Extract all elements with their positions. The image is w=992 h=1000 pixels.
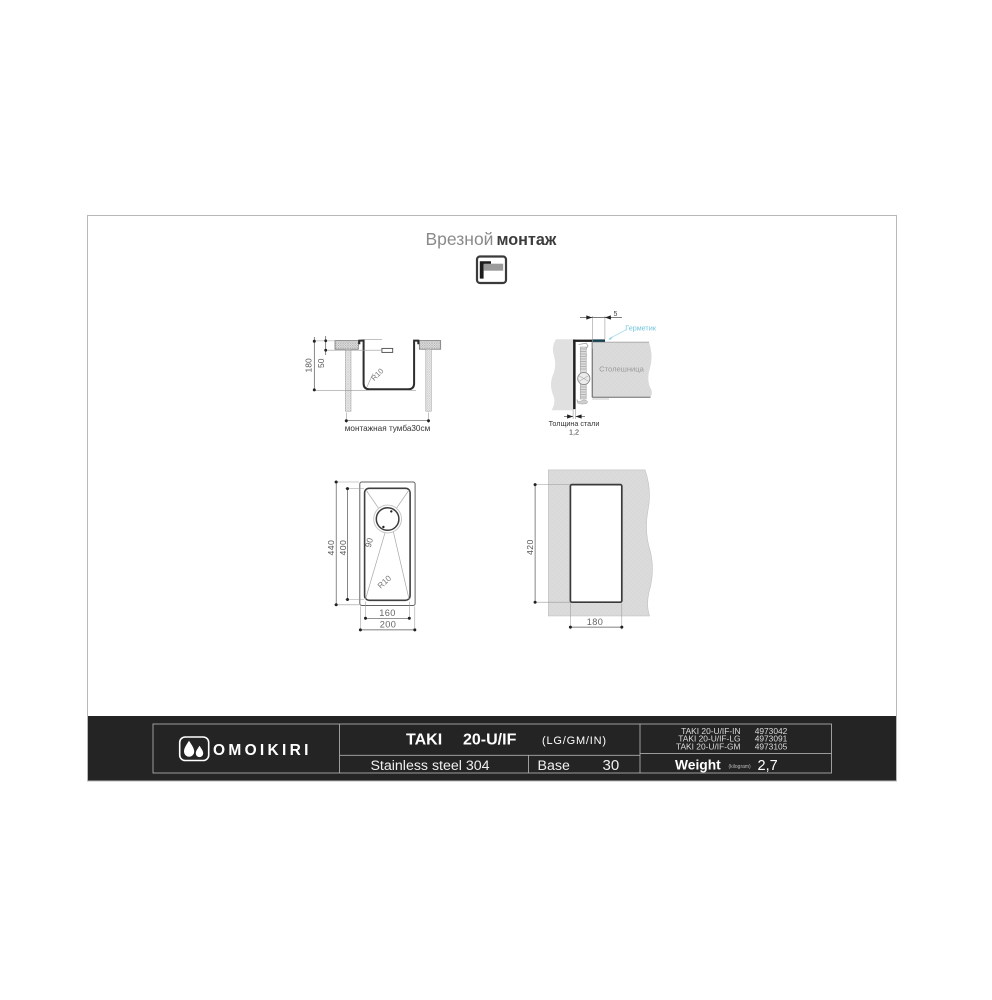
svg-text:200: 200 <box>380 620 397 630</box>
svg-text:30: 30 <box>603 757 620 774</box>
svg-text:50: 50 <box>316 358 326 368</box>
svg-text:400: 400 <box>338 540 348 556</box>
svg-text:OMOIKIRI: OMOIKIRI <box>213 742 312 759</box>
svg-text:TAKI: TAKI <box>406 732 442 749</box>
svg-text:180: 180 <box>304 358 314 372</box>
svg-text:160: 160 <box>379 608 396 618</box>
svg-text:Base: Base <box>538 758 570 774</box>
svg-text:4973105: 4973105 <box>755 741 788 751</box>
svg-text:2,7: 2,7 <box>758 758 778 774</box>
svg-text:монтажная тумба30см: монтажная тумба30см <box>345 424 431 433</box>
svg-text:Stainless steel 304: Stainless steel 304 <box>370 758 489 774</box>
svg-text:20-U/IF: 20-U/IF <box>463 732 517 749</box>
svg-text:420: 420 <box>525 539 535 555</box>
svg-text:TAKI 20-U/IF-GM: TAKI 20-U/IF-GM <box>676 741 741 751</box>
svg-text:180: 180 <box>587 617 604 627</box>
svg-text:5: 5 <box>614 311 618 318</box>
svg-text:Герметик: Герметик <box>625 324 656 333</box>
svg-text:440: 440 <box>326 540 336 556</box>
svg-text:Врезной: Врезной <box>426 229 494 249</box>
svg-text:(LG/GM/IN): (LG/GM/IN) <box>542 735 607 747</box>
svg-text:Weight: Weight <box>675 758 721 773</box>
svg-text:монтаж: монтаж <box>497 231 557 249</box>
svg-text:1,2: 1,2 <box>569 428 579 437</box>
svg-text:(kilogram): (kilogram) <box>729 764 752 770</box>
svg-text:Столешница: Столешница <box>599 365 644 374</box>
